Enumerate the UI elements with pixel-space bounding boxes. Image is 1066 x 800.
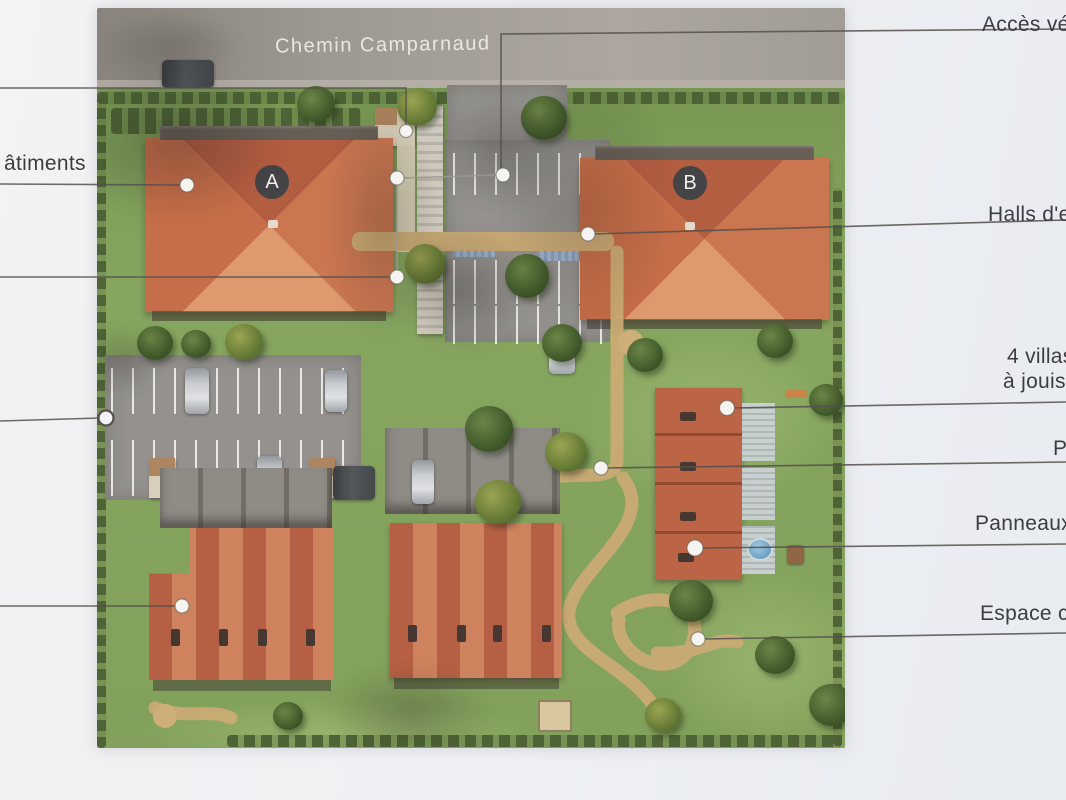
label-4-villas-line1: 4 villas — [1007, 344, 1066, 369]
label-espace-commun: Espace con — [980, 601, 1066, 626]
label-batiments: âtiments — [4, 151, 86, 176]
ring-marker — [99, 411, 114, 426]
label-halls-entree: Halls d'e — [988, 202, 1066, 227]
callout-lines — [0, 0, 1066, 800]
label-parking: Pa — [1053, 436, 1066, 461]
photographed-site-plan-page: Chemin Camparnaud A — [0, 0, 1066, 800]
label-acces-vehicules: Accès véhi — [982, 12, 1066, 37]
label-panneaux: Panneaux p — [975, 511, 1066, 536]
label-4-villas-line2: à jouiss — [1003, 369, 1066, 394]
